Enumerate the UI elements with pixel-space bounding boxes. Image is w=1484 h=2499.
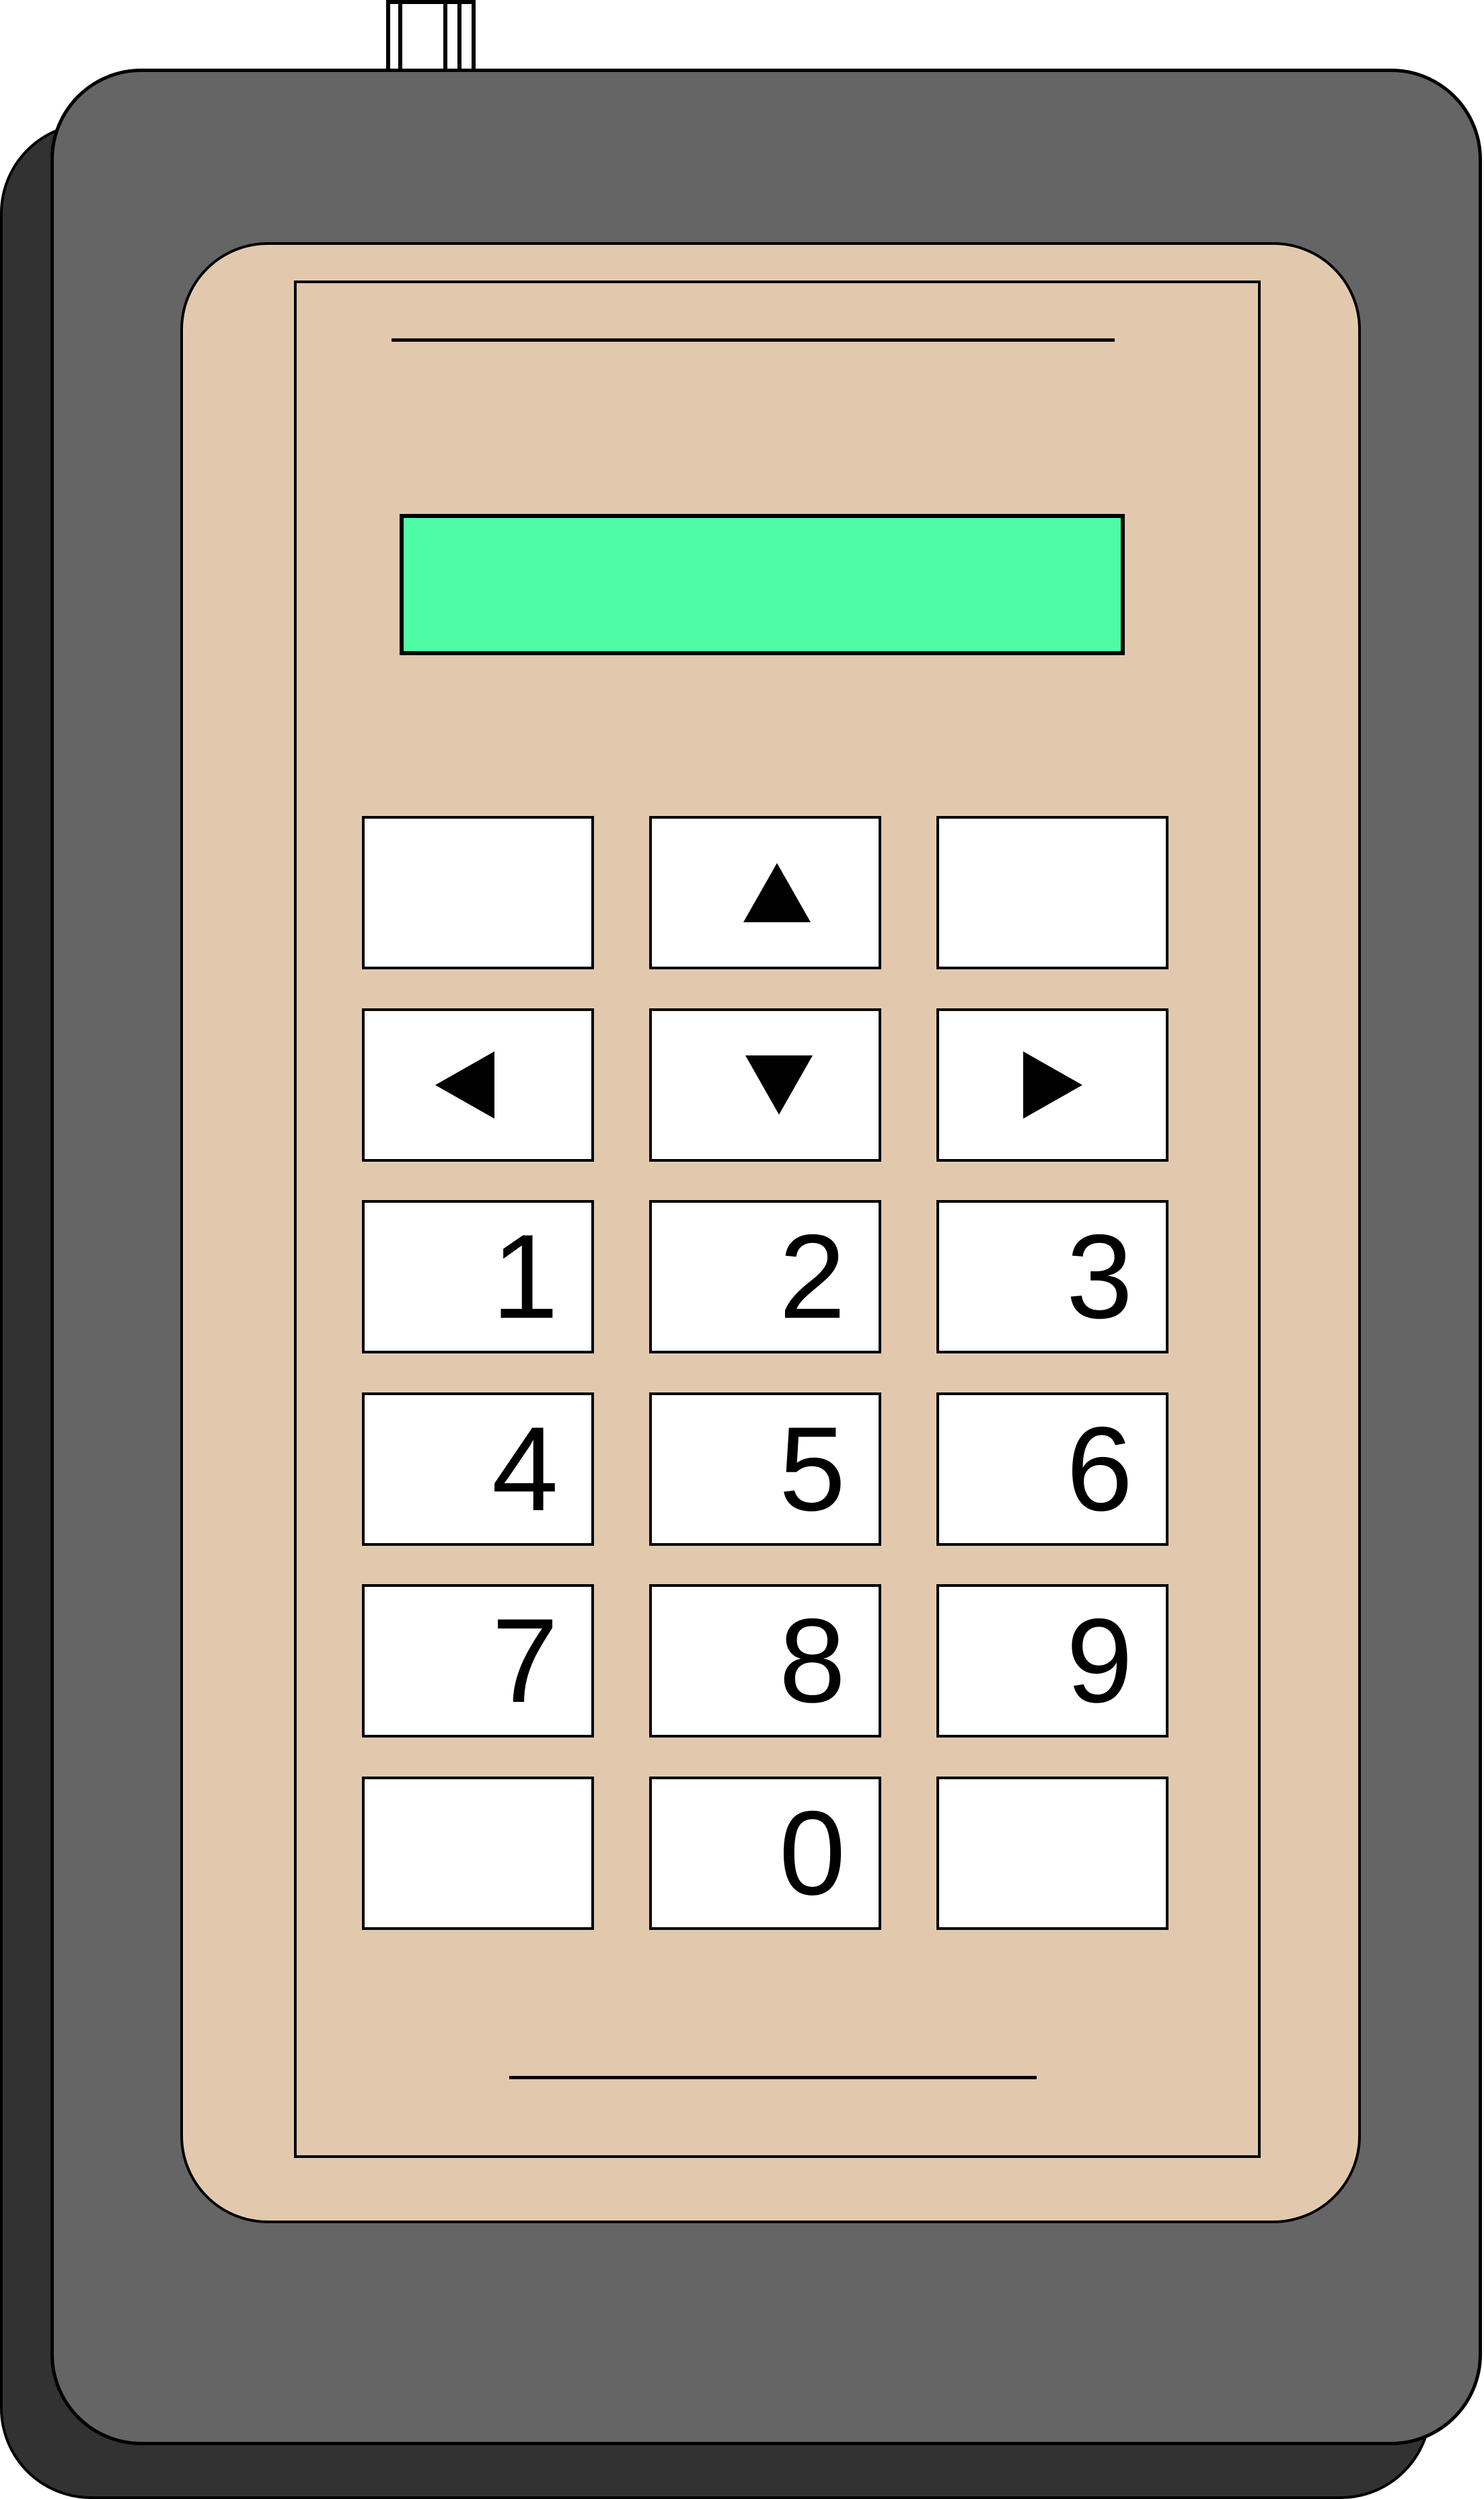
key-blank-top-right[interactable] xyxy=(936,816,1168,969)
key-blank-bottom-left[interactable] xyxy=(362,1777,594,1930)
triangle-down-icon xyxy=(745,1055,813,1115)
top-divider-line xyxy=(392,338,1115,342)
key-9-label: 9 xyxy=(1066,1601,1133,1721)
key-5-button[interactable]: 5 xyxy=(649,1392,881,1546)
antenna-line xyxy=(457,4,461,73)
key-2-button[interactable]: 2 xyxy=(649,1200,881,1353)
antenna xyxy=(386,0,476,73)
key-0-button[interactable]: 0 xyxy=(649,1777,881,1930)
key-blank-top-left[interactable] xyxy=(362,816,594,969)
key-1-button[interactable]: 1 xyxy=(362,1200,594,1353)
key-blank-bottom-right[interactable] xyxy=(936,1777,1168,1930)
triangle-left-icon xyxy=(435,1051,494,1119)
key-up-button[interactable] xyxy=(649,816,881,969)
key-5-label: 5 xyxy=(779,1409,846,1529)
key-4-button[interactable]: 4 xyxy=(362,1392,594,1546)
key-8-button[interactable]: 8 xyxy=(649,1584,881,1738)
triangle-up-icon xyxy=(743,863,811,922)
key-0-label: 0 xyxy=(779,1793,846,1913)
bottom-divider-line xyxy=(509,2076,1037,2079)
key-7-button[interactable]: 7 xyxy=(362,1584,594,1738)
handheld-device-illustration: 1 2 3 4 5 6 7 8 9 0 xyxy=(0,0,1484,2499)
antenna-line xyxy=(443,4,447,73)
key-4-label: 4 xyxy=(492,1409,558,1529)
key-7-label: 7 xyxy=(492,1601,558,1721)
key-6-label: 6 xyxy=(1066,1409,1133,1529)
key-down-button[interactable] xyxy=(649,1008,881,1162)
key-3-button[interactable]: 3 xyxy=(936,1200,1168,1353)
lcd-display xyxy=(400,514,1125,655)
triangle-right-icon xyxy=(1023,1051,1082,1119)
antenna-line xyxy=(398,4,402,73)
key-1-label: 1 xyxy=(492,1217,558,1337)
key-9-button[interactable]: 9 xyxy=(936,1584,1168,1738)
key-left-button[interactable] xyxy=(362,1008,594,1162)
key-8-label: 8 xyxy=(779,1601,846,1721)
key-6-button[interactable]: 6 xyxy=(936,1392,1168,1546)
key-2-label: 2 xyxy=(779,1217,846,1337)
key-3-label: 3 xyxy=(1066,1217,1133,1337)
key-right-button[interactable] xyxy=(936,1008,1168,1162)
keypad: 1 2 3 4 5 6 7 8 9 0 xyxy=(362,816,1168,1930)
